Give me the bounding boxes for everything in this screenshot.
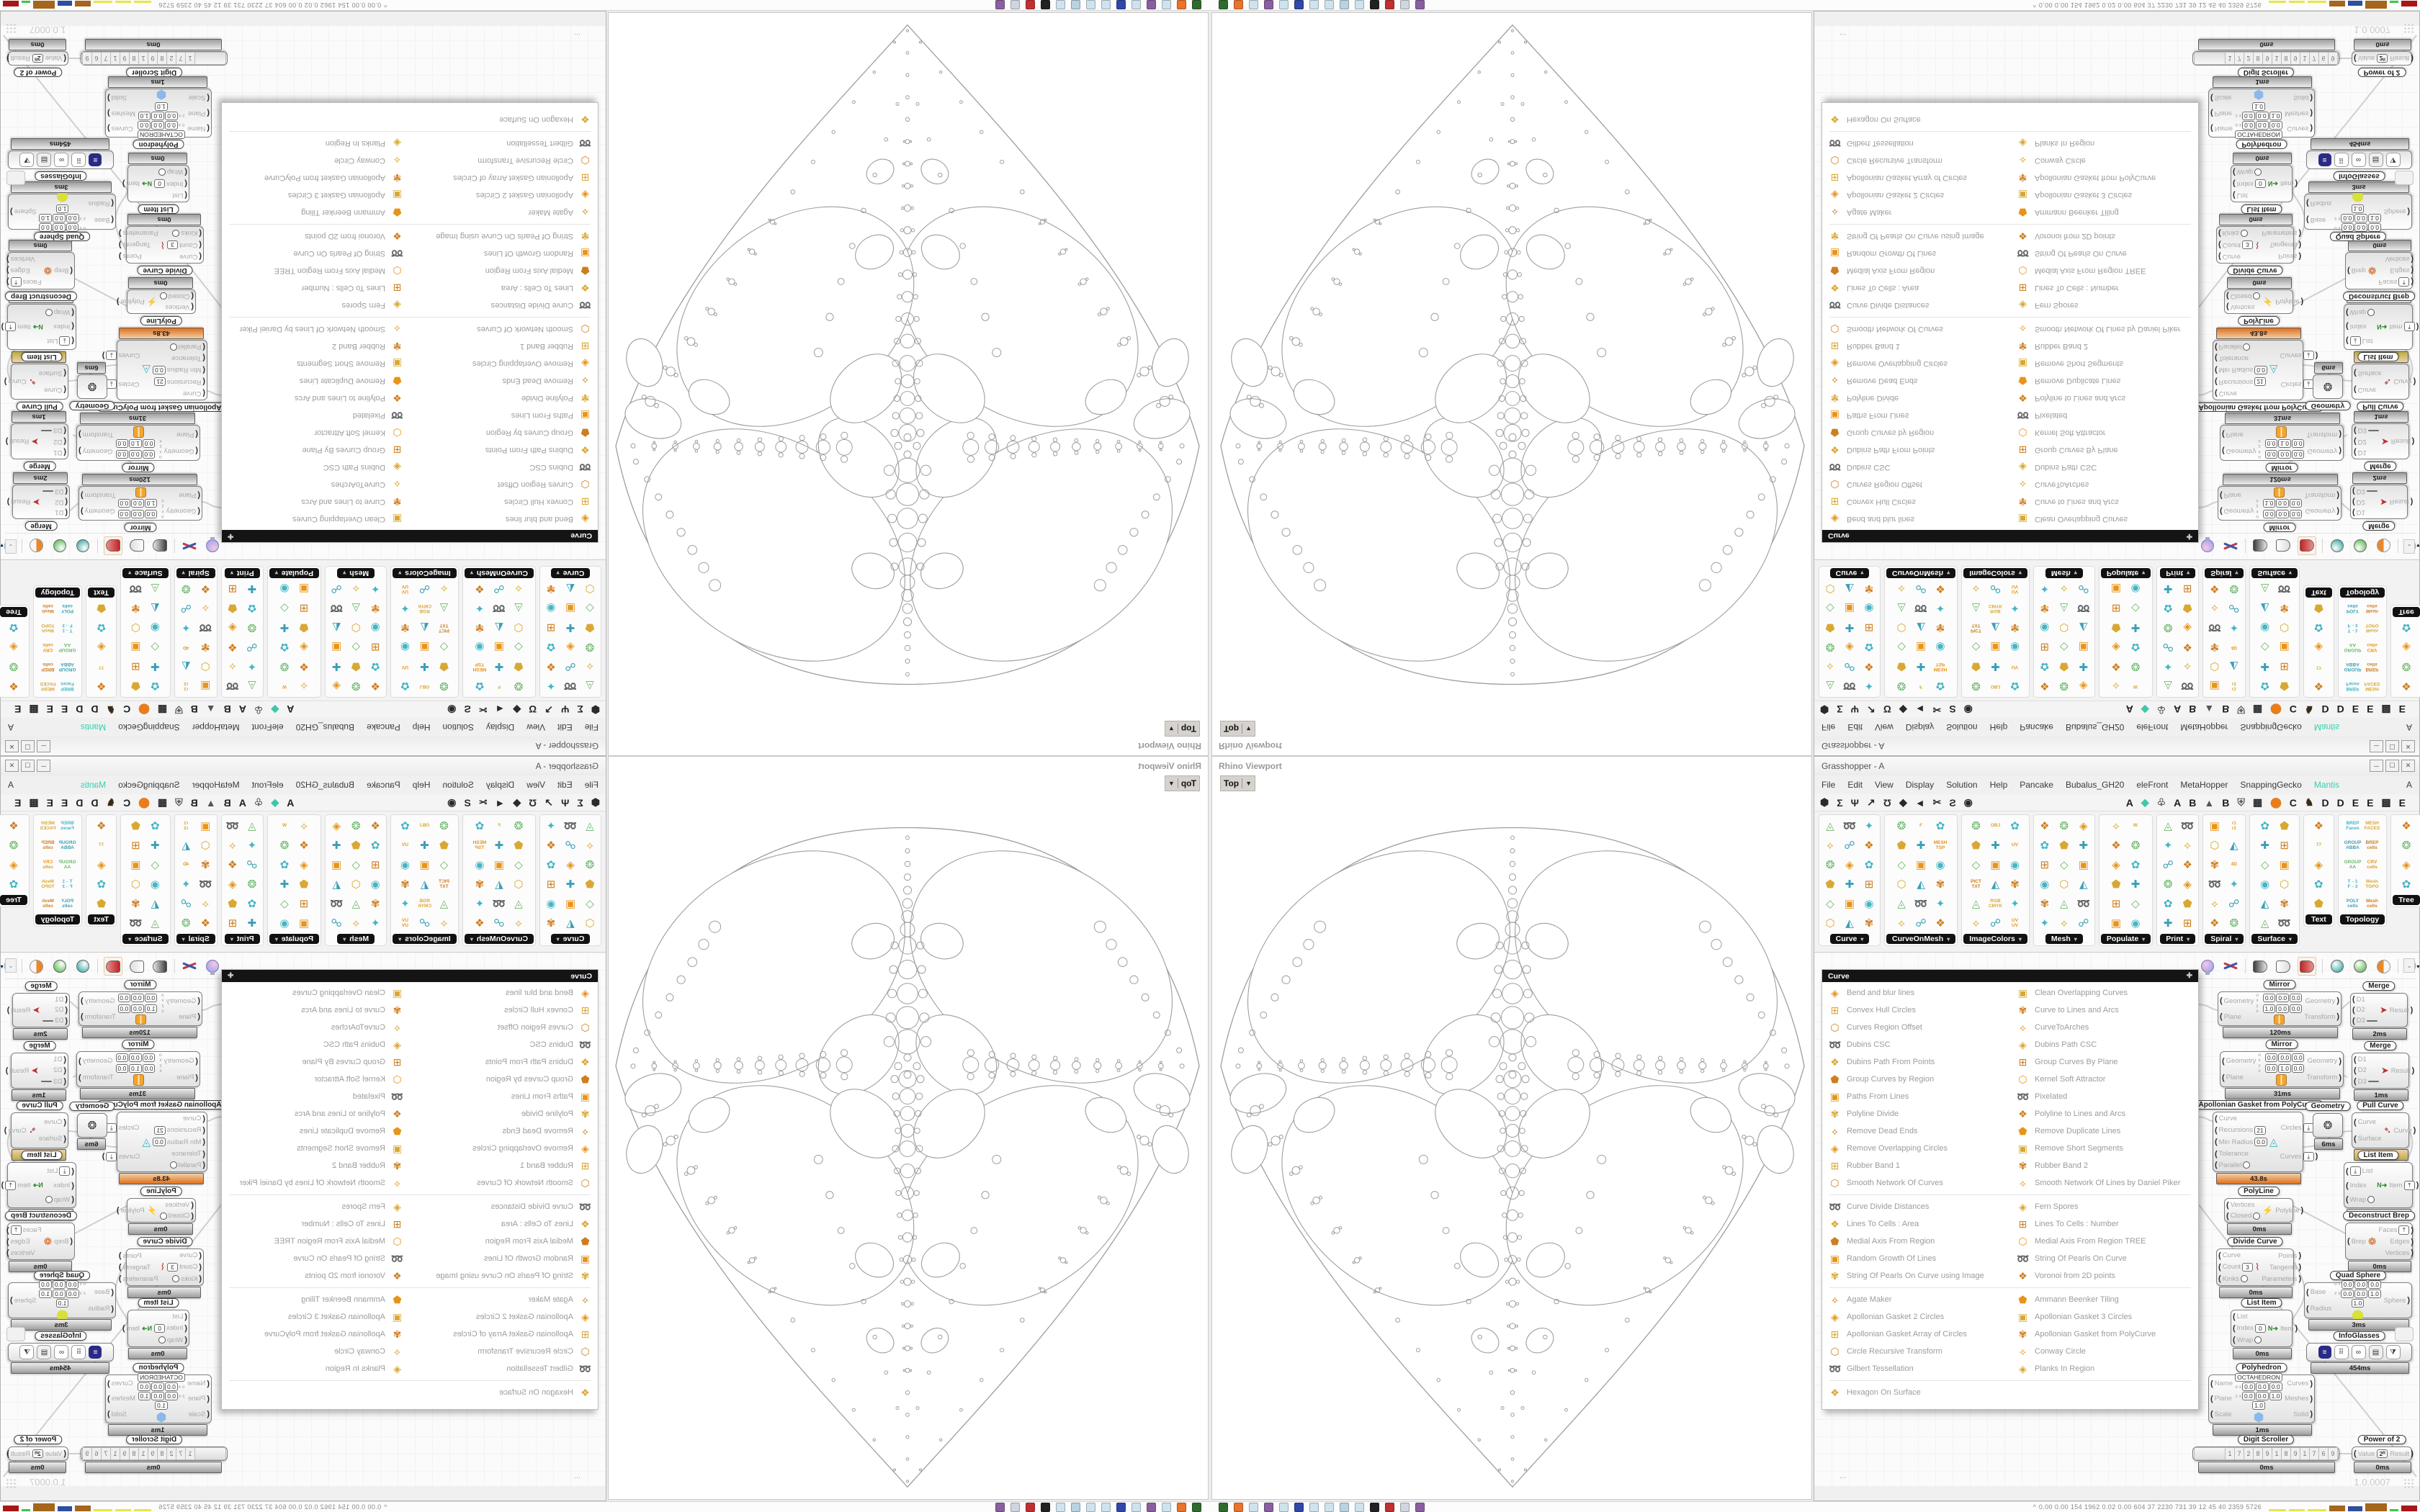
component-icon-mesh-cells[interactable]: Mesh cells [2362,599,2381,618]
eye-icon[interactable]: ◉ [1964,703,1973,716]
input-curve[interactable]: (Curve [153,1115,205,1122]
drawer-icon[interactable]: ▤ [37,153,52,167]
node-deconstruct-brep[interactable]: (Brep❁Faces⤒)Edges)Vertices) [2345,1223,2413,1260]
digit-cell[interactable]: 8 [2282,52,2291,65]
node-list-item-2[interactable]: (List(Index0(WrapN➜Item) [2231,165,2293,202]
component-icon[interactable]: ➿ [1840,677,1859,696]
matrix-value-box[interactable]: 0.0 [66,1290,79,1298]
component-icon[interactable]: ◭ [561,914,580,932]
bird-icon[interactable]: ♞ [2305,796,2314,809]
menu-item-voronoi-from-2d-points[interactable]: ❖Voronoi from 2D points [2010,1267,2198,1284]
dropdown-header[interactable]: Curve✚ [1822,530,2198,542]
window-icon[interactable] [1010,1503,1020,1512]
digit-cell[interactable]: 1 [2272,1447,2282,1460]
output-circles[interactable]: Circles⤓) [102,380,140,390]
sigma-icon[interactable]: Σ [577,797,583,809]
grid-dots-icon[interactable]: ⠿ [2334,153,2349,167]
node-label-deconstruct-brep[interactable]: Deconstruct Brep [5,292,77,301]
component-icon[interactable]: ✾ [2275,599,2294,618]
component-icon[interactable]: ◭ [2225,657,2244,676]
component-icon[interactable]: ◉ [275,914,294,932]
tray-expand-arrow[interactable]: ^ [384,1,387,9]
close-button[interactable]: ✕ [5,740,19,752]
input-plane[interactable]: (Plane [166,492,200,500]
matrix-value-box[interactable]: 0.0 [2276,510,2289,518]
component-icon[interactable]: ❂ [346,677,365,696]
component-icon-group-abba[interactable]: GROUP ABBA [2343,657,2362,676]
matrix-value-box[interactable]: 0.0 [2242,1392,2255,1400]
output-sphere[interactable]: Sphere) [2384,208,2410,216]
input-value-box[interactable]: 0.0 [153,366,166,374]
menu-item-edit[interactable]: Edit [1847,780,1863,790]
input-value-box[interactable] [41,1081,52,1082]
output-edges[interactable]: Edges) [2390,266,2414,274]
matrix-value-box[interactable]: 1.0 [2263,499,2276,508]
letter-e-icon[interactable]: E [61,797,68,809]
component-icon[interactable]: ➿ [1912,894,1930,913]
ellipse-icon[interactable]: ⬤ [2270,796,2282,809]
component-icon-r1-r2[interactable]: r1 r2 [2225,816,2244,835]
menu-item-lines-to-cells-number[interactable]: ⊞Lines To Cells : Number [2010,1215,2198,1233]
matrix-value-box[interactable]: 0.0 [2290,499,2303,508]
digit-cell[interactable]: 6 [91,52,101,65]
component-icon[interactable]: ✾ [366,599,385,618]
component-icon[interactable]: ☍ [1986,580,2005,598]
pin-teal-icon[interactable] [2329,958,2346,975]
component-icon[interactable]: ✚ [1840,618,1859,637]
output-box[interactable]: ⤒ [2404,1181,2415,1190]
component-icon[interactable]: ✿ [275,855,294,874]
input-toggle[interactable] [2243,1161,2250,1169]
input-name[interactable]: (Name [187,1380,210,1387]
node-geometry[interactable]: ❂ [77,1113,107,1138]
component-icon[interactable]: ❂ [1892,816,1911,835]
node-geometry[interactable]: ❂ [2313,1113,2343,1138]
input-d1[interactable]: (D1 [2354,1056,2379,1063]
component-icon[interactable]: ◇ [275,599,294,618]
output-box[interactable]: ⤒ [11,1225,22,1235]
component-icon[interactable]: ✿ [2035,836,2054,855]
component-icon-w[interactable]: W [275,816,294,835]
component-icon[interactable]: ✦ [2006,894,2025,913]
node-pull-curve[interactable]: (Curve(Surface➴Curve) [11,1112,68,1148]
component-icon[interactable]: ✿ [2397,875,2416,894]
component-icon[interactable]: ✿ [4,875,23,894]
input-value-box[interactable]: 0 [154,1324,165,1333]
menu-item-help[interactable]: Help [1990,722,2008,732]
gimp-icon[interactable] [1264,1503,1273,1512]
letter-e-icon[interactable]: E [2352,797,2359,809]
menu-item-planks-in-region[interactable]: ◈Planks In Region [222,1360,410,1377]
ruby-icon[interactable] [1026,1503,1035,1512]
component-icon[interactable]: ❖ [196,580,215,598]
component-icon[interactable]: ⊞ [366,638,385,657]
component-icon[interactable]: ◈ [2107,638,2125,657]
matrix-value-box[interactable]: 0.0 [66,224,79,233]
component-icon[interactable]: ▣ [2074,855,2093,874]
component-icon[interactable]: ❂ [275,836,294,855]
matrix-value-box[interactable]: 0.0 [2256,1392,2269,1400]
node-label-pull-curve[interactable]: Pull Curve [2357,402,2403,411]
digit-cell[interactable]: 1 [2226,1447,2235,1460]
component-icon[interactable]: ⬟ [1967,657,1986,676]
notepad-icon[interactable] [1355,1,1364,10]
menu-item-ammann-beenker-tiling[interactable]: ⬟Ammann Beenker Tiling [222,204,410,221]
shelf-tab-tree[interactable]: Tree [0,607,27,617]
component-icon[interactable]: ⬟ [2309,599,2328,618]
component-icon[interactable]: ✚ [2074,657,2093,676]
component-icon[interactable]: ✚ [2256,836,2275,855]
component-icon-f[interactable]: F [490,677,508,696]
component-icon[interactable]: ⟡ [295,677,313,696]
digit-cell[interactable]: 7 [176,1447,185,1460]
component-icon[interactable]: ▣ [2275,855,2294,874]
component-icon-77[interactable]: 77 [92,657,111,676]
component-icon[interactable]: ❂ [275,657,294,676]
component-icon-mesh-tsp[interactable]: MESH TSP [1931,657,1950,676]
component-icon[interactable]: ❂ [1967,816,1986,835]
menu-item-curve-to-lines-and-arcs[interactable]: ✾Curve to Lines and Arcs [222,1002,410,1019]
input-value[interactable]: (Value [45,1450,66,1458]
component-icon[interactable]: ⬡ [2205,836,2224,855]
menu-item-circle-recursive-transform[interactable]: ⬡Circle Recursive Transform [410,152,598,169]
input-index[interactable]: (Index [2346,1182,2375,1189]
component-icon[interactable]: ✾ [542,914,560,932]
goggles-icon[interactable]: ∞ [55,153,69,167]
cylinder-red-icon[interactable] [104,957,122,976]
component-icon[interactable]: ▣ [415,855,434,874]
input-wrap[interactable]: (Wrap [45,1196,74,1204]
component-icon[interactable]: ⟡ [346,914,365,932]
component-icon[interactable]: ⊞ [366,855,385,874]
component-icon[interactable]: ✾ [2035,894,2054,913]
menu-item-fern-spores[interactable]: ◈Fern Spores [222,1198,410,1215]
component-icon[interactable]: ⬡ [346,875,365,894]
sigma-icon[interactable]: Σ [1837,797,1842,809]
grid-dots-icon[interactable]: ⠿ [72,153,86,167]
notepad-icon[interactable] [1131,1503,1141,1512]
matrix-value-box[interactable]: 0.0 [2292,450,2305,459]
component-icon-rgb-cmyk[interactable]: RGB CMYK [1986,894,2005,913]
input-list[interactable]: (List [2233,192,2266,199]
goggles-icon[interactable]: ∞ [2352,153,2366,167]
component-icon[interactable]: ✦ [2035,914,2054,932]
component-icon[interactable]: ✚ [1840,875,1859,894]
component-icon[interactable]: ❂ [2225,914,2244,932]
input-plane[interactable]: (Plane [2220,1013,2254,1021]
mountain-icon[interactable]: ▲ [2204,704,2214,716]
node-label-power-of-2[interactable]: Power of 2 [2358,1435,2406,1444]
notepad-icon[interactable] [1249,1,1258,10]
component-icon[interactable]: ◇ [1892,638,1911,657]
node-label-polyline[interactable]: PolyLine [2238,316,2280,325]
component-icon[interactable]: ◭ [1840,580,1859,598]
component-icon[interactable]: ✚ [490,657,508,676]
grasshopper-title-bar[interactable]: Grasshopper - A─☐✕ [1,757,606,775]
input-d1[interactable]: (D1 [42,996,68,1004]
toolbar-collapse-button[interactable]: ⌄ [2403,539,2415,554]
input-base[interactable]: (Base [89,216,114,224]
component-icon[interactable]: ▣ [561,894,580,913]
output-transform[interactable]: Transform) [81,492,116,500]
input-value-box[interactable] [2367,490,2378,492]
digit-cell[interactable]: 1 [110,52,120,65]
window-icon[interactable] [1010,1,1020,10]
grid-dots-icon[interactable]: ⠿ [72,1345,86,1359]
input-geometry[interactable]: (Geometry [2222,447,2256,455]
input-value-box[interactable]: 3 [167,1263,178,1272]
component-icon[interactable]: ◭ [327,875,346,894]
hexagon-icon[interactable]: ⬢ [1820,703,1829,716]
menu-item-metahopper[interactable]: MetaHopper [2180,722,2228,732]
input-wrap[interactable]: (Wrap [154,168,187,176]
component-icon-w[interactable]: W [275,677,294,696]
component-icon-uv[interactable]: UV [395,836,414,855]
menu-item-hexagon-on-surface[interactable]: ❖Hexagon On Surface [1822,1384,2010,1401]
input-box[interactable]: ⤓ [2350,1166,2361,1176]
menu-item-polyline-divide[interactable]: ✾Polyline Divide [1822,1105,2010,1122]
output-curves[interactable]: Curves) [2287,1380,2313,1387]
pin-icon[interactable]: ✚ [228,532,233,540]
output-parameters[interactable]: Parameters) [119,1275,158,1283]
notepad-icon[interactable] [1086,1503,1095,1512]
component-icon-group-abba[interactable]: GROUP ABBA [2343,836,2362,855]
shield-icon[interactable]: ⛨ [2237,796,2245,809]
output-faces[interactable]: Faces⤒) [6,277,42,287]
pin-green-icon[interactable] [51,958,68,975]
component-icon[interactable]: ◈ [2107,855,2125,874]
node-polyhedron[interactable]: (Name(Plane(ScaleOCTAHEDRONo x0.00.00.0z… [105,89,212,138]
component-icon[interactable]: ➿ [490,599,508,618]
input-kinks[interactable]: (Kinks [167,229,202,237]
menu-item-remove-overlapping-circles[interactable]: ◈Remove Overlapping Circles [410,1140,598,1157]
component-icon[interactable]: ❂ [581,638,599,657]
menu-item-apollonian-gasket-array-of-circles[interactable]: ⊞Apollonian Gasket Array of Circles [410,169,598,186]
letter-a2-icon[interactable]: A [2174,797,2181,809]
menu-item-curvetoarches[interactable]: ⟡CurveToArches [222,1019,410,1036]
component-icon[interactable]: ❂ [434,677,453,696]
component-icon[interactable]: ✦ [542,816,560,835]
component-icon-mesh-tsp[interactable]: MESH TSP [470,836,489,855]
menu-item-planks-in-region[interactable]: ◈Planks In Region [2010,1360,2198,1377]
node-label-infoglasses[interactable]: InfoGlasses [2333,171,2385,181]
component-icon[interactable]: ✿ [2159,599,2177,618]
input-tolerance[interactable]: (Tolerance [153,1150,205,1158]
component-icon[interactable]: ⬡ [509,875,528,894]
digit-cell[interactable]: 8 [2254,1447,2263,1460]
shelf-tab-print[interactable]: Print▾ [225,568,260,578]
menu-item-ammann-beenker-tiling[interactable]: ⬟Ammann Beenker Tiling [222,1291,410,1308]
matrix-value-box[interactable]: 0.0 [143,450,156,459]
component-icon[interactable]: ➿ [327,894,346,913]
component-icon[interactable]: ◈ [2397,638,2416,657]
input-list[interactable]: (⤓List [45,336,74,346]
node-digit-scroller[interactable]: 172891891769 [81,1446,228,1461]
notepad-icon[interactable] [1056,1,1065,10]
menu-item-fern-spores[interactable]: ◈Fern Spores [2010,1198,2198,1215]
letter-a-icon[interactable]: A [287,797,294,809]
matrix-value-box[interactable]: 0.0 [165,121,178,130]
output-box[interactable]: ⤒ [2404,323,2415,332]
battery-icon[interactable] [1219,1503,1228,1512]
node-mirror-2[interactable]: (Geometry(Planeo x0.00.00.0z x0.01.00.0G… [76,425,200,461]
component-icon[interactable]: ☍ [327,914,346,932]
pen-icon[interactable]: ↗ [1867,796,1875,809]
battery-icon[interactable] [1192,1503,1201,1512]
input-curve[interactable]: (Curve [153,390,205,397]
letter-b-icon[interactable]: B [224,797,231,809]
shelf-tab-surface[interactable]: Surface▾ [122,568,169,578]
component-icon-t-1-f-3[interactable]: T→1 F→3 [2343,618,2362,637]
component-icon[interactable]: ❖ [295,657,313,676]
digit-cell[interactable]: 9 [2263,52,2272,65]
letter-e2-icon[interactable]: E [47,797,53,809]
matrix-value-box[interactable]: 0.0 [2263,994,2276,1002]
matrix-value-box[interactable]: 0.0 [2290,994,2303,1002]
menu-item-pancake[interactable]: Pancake [2020,722,2053,732]
component-icon[interactable]: ❖ [2035,677,2054,696]
input-value-box[interactable] [2367,1020,2378,1022]
gimp-icon[interactable] [995,1503,1005,1512]
component-icon[interactable]: ◈ [1840,855,1859,874]
menu-item-file[interactable]: File [585,780,599,790]
tray-expand-arrow[interactable]: ^ [2033,1,2036,9]
resize-grip[interactable] [6,24,17,34]
digit-cell[interactable]: 6 [91,1447,101,1460]
node-label-list-item-1[interactable]: List Item [2357,352,2398,361]
component-icon[interactable]: ⟡ [2107,677,2125,696]
output-tangents[interactable]: Tangents) [119,241,151,249]
input-list[interactable]: (⤓List [2346,1166,2375,1176]
toolbar-collapse-button[interactable]: ⌄ [5,539,17,554]
digit-cell[interactable]: 7 [2310,52,2319,65]
component-icon[interactable]: ⟡ [295,816,313,835]
matrix-value-box[interactable]: 0.0 [2269,1382,2282,1391]
output-vertices[interactable]: Vertices) [6,1249,35,1257]
shelf-tab-topology[interactable]: Topology [35,914,80,924]
component-icon[interactable]: ◉ [1931,855,1950,874]
component-icon[interactable]: ⊞ [1860,618,1878,637]
grid-icon[interactable]: ▦ [158,796,167,809]
input-brep[interactable]: (Brep [2347,1238,2366,1246]
menu-item-apollonian-gasket-3-circles[interactable]: ▣Apollonian Gasket 3 Circles [222,186,410,204]
menu-item-apollonian-gasket-from-polycurve[interactable]: ✾Apollonian Gasket from PolyCurve [2010,1326,2198,1343]
component-icon[interactable]: ▣ [2107,914,2125,932]
chevron-down-icon[interactable]: ▼ [1245,725,1252,732]
close-button[interactable]: ✕ [2401,760,2415,772]
shelf-tab-topology[interactable]: Topology [2340,588,2385,598]
matrix-value-box[interactable]: 0.0 [2263,510,2276,518]
input-value-box[interactable]: 0.0 [2254,1138,2267,1146]
component-icon[interactable]: ➿ [2178,677,2197,696]
node-label-infoglasses[interactable]: InfoGlasses [35,1331,87,1341]
pin-icon[interactable]: ✚ [2187,532,2192,540]
component-icon[interactable]: ✾ [542,580,560,598]
puzzle-icon[interactable]: ⧩ [2386,153,2401,167]
grid-icon[interactable]: ▦ [2253,796,2262,809]
matrix-value-box[interactable]: 0.0 [2354,1290,2367,1298]
component-icon[interactable]: ◭ [1912,875,1930,894]
component-icon[interactable]: ✚ [243,914,261,932]
node-mirror-1[interactable]: (Geometry(Planeo x0.00.00.0z x1.00.00.0G… [2218,486,2341,521]
menu-item-smooth-network-of-lines-by-daniel-piker[interactable]: ⟡Smooth Network Of Lines by Daniel Piker [2010,1174,2198,1192]
ruby-icon[interactable] [1026,1,1035,10]
component-icon[interactable]: ❖ [223,638,242,657]
component-icon[interactable]: ⬟ [509,836,528,855]
component-icon[interactable]: ◭ [490,618,508,637]
menu-item-polyline-divide[interactable]: ✾Polyline Divide [1822,390,2010,407]
component-icon[interactable]: ◇ [581,894,599,913]
menu-item-remove-short-segments[interactable]: ▣Remove Short Segments [222,355,410,372]
component-icon-uv[interactable]: UV [2006,657,2025,676]
component-icon[interactable]: ◇ [346,638,365,657]
input-toggle[interactable] [2367,309,2375,316]
output-polyline[interactable]: Polyline) [2275,298,2303,306]
matrix-value-box[interactable]: 0.0 [66,1280,79,1289]
digit-cell[interactable]: 7 [101,1447,110,1460]
component-icon[interactable]: ✿ [542,855,560,874]
component-icon[interactable]: ✦ [470,599,489,618]
menu-item-apollonian-gasket-2-circles[interactable]: ◈Apollonian Gasket 2 Circles [1822,1308,2010,1326]
matrix-value-box[interactable]: 0.0 [138,121,151,130]
input-parallel[interactable]: (Parallel [153,343,205,351]
notepad-icon[interactable] [1340,1,1349,10]
component-icon[interactable]: ✾ [126,599,145,618]
digit-cell[interactable]: 8 [129,52,138,65]
shelf-tab-tree[interactable]: Tree [2393,607,2420,617]
digit-cell[interactable]: 1 [185,52,194,65]
component-icon[interactable]: ❖ [196,914,215,932]
matrix-value-box[interactable]: 0.0 [2256,1382,2269,1391]
menu-item-medial-axis-from-region-tree[interactable]: ⬡Medial Axis From Region TREE [222,1233,410,1250]
component-icon[interactable]: ⟡ [196,894,215,913]
component-icon[interactable]: ▣ [415,638,434,657]
input-base[interactable]: (Base [2306,216,2331,224]
component-icon-w[interactable]: W [2126,816,2145,835]
shelf-tab-spiral[interactable]: Spiral▾ [2205,934,2244,944]
component-icon[interactable]: ⬟ [1967,836,1986,855]
component-icon[interactable]: ◈ [4,855,23,874]
node-label-deconstruct-brep[interactable]: Deconstruct Brep [5,1211,77,1220]
digit-cell[interactable]: 6 [2319,1447,2329,1460]
component-icon[interactable]: ◉ [2035,875,2054,894]
menu-item-dubins-path-csc[interactable]: ◈Dubins Path CSC [2010,1036,2198,1053]
output-curves[interactable]: Curves) [2287,125,2313,132]
component-icon-brep-cells[interactable]: BREP cells [2362,836,2381,855]
matrix-value-box[interactable]: 0.0 [116,450,129,459]
menu-ball-icon[interactable]: ≡ [89,153,102,166]
component-icon[interactable]: ⟡ [1967,914,1986,932]
matrix-value-box[interactable]: 1.0 [2269,112,2282,120]
component-icon[interactable]: ◉ [2256,618,2275,637]
menu-item-file[interactable]: File [585,722,599,732]
cylinder-wire-icon[interactable] [128,958,145,975]
menu-item-curves-region-offset[interactable]: ⬡Curves Region Offset [1822,476,2010,493]
shelf-tab-imagecolors[interactable]: ImageColors▾ [1963,934,2027,944]
digit-slider[interactable] [194,1447,226,1460]
shelf-tab-populate[interactable]: Populate▾ [269,568,319,578]
component-icon[interactable]: ✚ [2126,875,2145,894]
component-icon[interactable]: ✚ [1986,657,2005,676]
component-icon[interactable]: ⬡ [581,580,599,598]
component-icon-mesh-cells[interactable]: Mesh cells [2362,894,2381,913]
component-icon-pict-txt[interactable]: PICT TXT [434,618,453,637]
notepad-icon[interactable] [1101,1,1111,10]
component-icon[interactable]: ⬟ [1821,618,1839,637]
menu-item-edit[interactable]: Edit [557,722,573,732]
letter-d2-icon[interactable]: D [76,797,83,809]
component-icon[interactable]: ◭ [2074,875,2093,894]
